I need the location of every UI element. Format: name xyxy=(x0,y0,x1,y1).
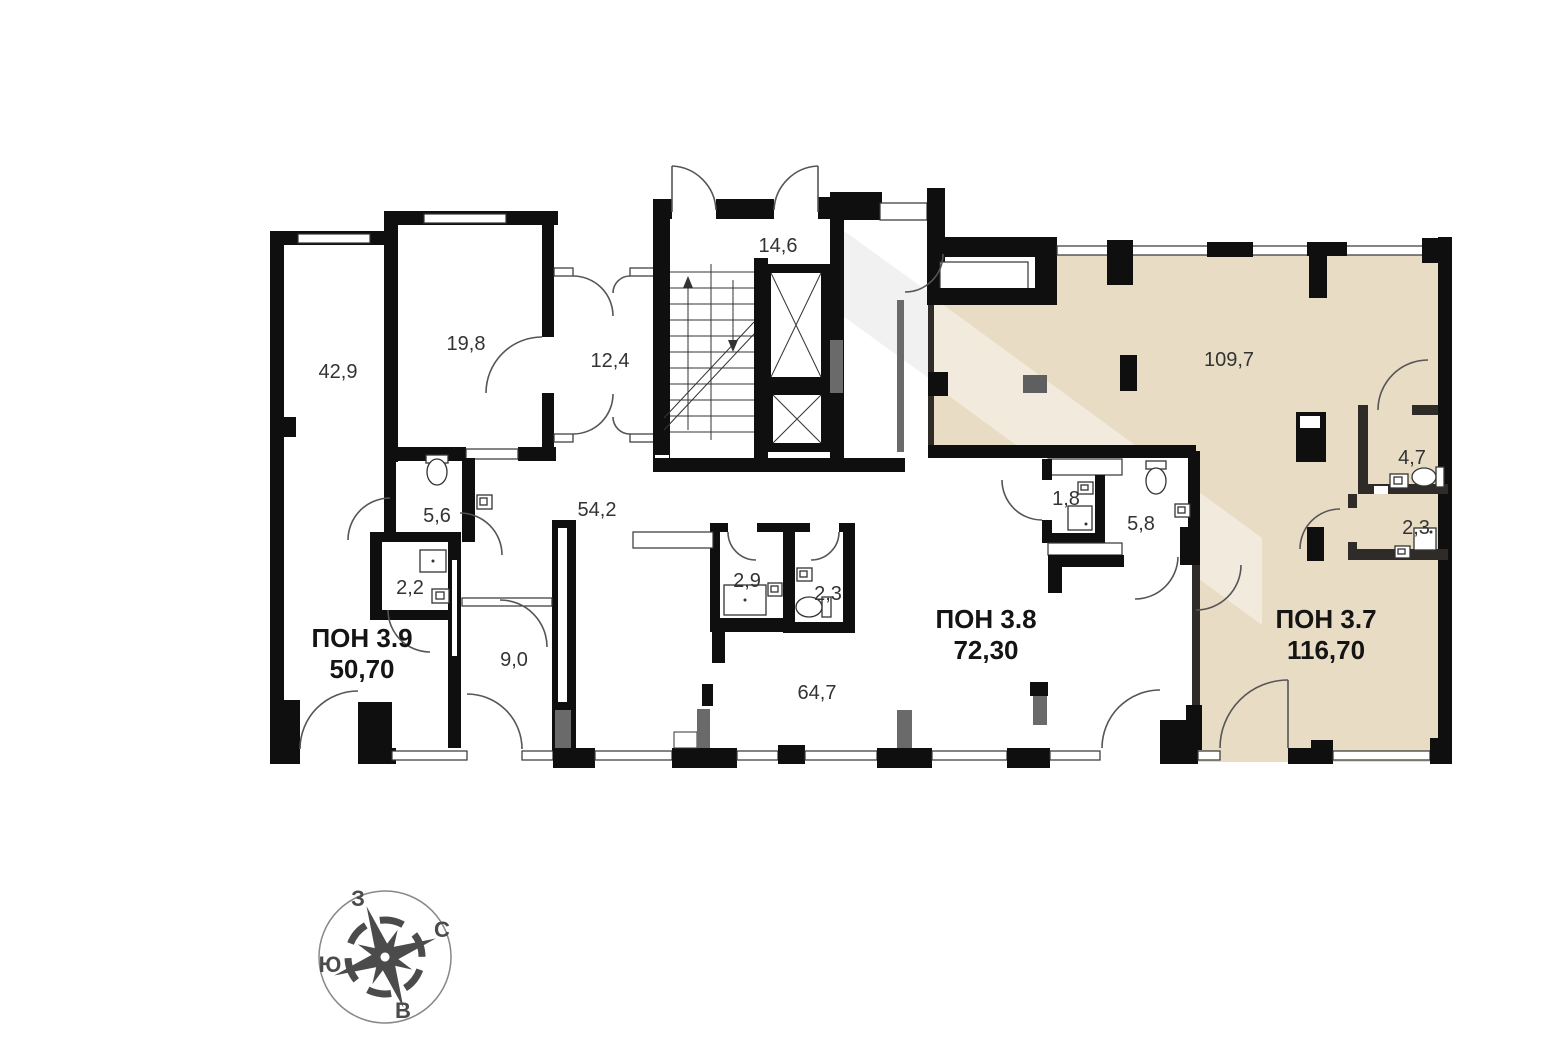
sink-icon xyxy=(420,550,446,572)
sink-icon xyxy=(768,583,782,596)
compass-west-label: З xyxy=(351,886,365,911)
room-area-label: 109,7 xyxy=(1204,349,1254,371)
compass-south-label: Ю xyxy=(319,952,342,977)
stairs-down-arrow xyxy=(728,340,738,352)
toilet-icon xyxy=(1412,467,1444,487)
floor-plan-page: 42,9 19,8 12,4 14,6 5,6 54,2 2,2 9,0 2,9… xyxy=(0,0,1550,1058)
unit-label-3-7: ПОН 3.7 116,70 xyxy=(1275,604,1376,665)
room-area-label: 2,3 xyxy=(814,583,842,605)
toilet-icon xyxy=(1146,461,1166,494)
unit-area: 116,70 xyxy=(1287,635,1365,665)
elevator-shaft-1 xyxy=(762,264,830,386)
room-area-label: 2,2 xyxy=(396,577,424,599)
room-area-label: 4,7 xyxy=(1398,447,1426,469)
room-area-label: 5,6 xyxy=(423,505,451,527)
room-area-label: 54,2 xyxy=(578,499,617,521)
floor-plan: 42,9 19,8 12,4 14,6 5,6 54,2 2,2 9,0 2,9… xyxy=(0,0,1550,1058)
sink-icon xyxy=(432,589,449,603)
elevator-shaft-2 xyxy=(764,386,830,452)
sink-icon xyxy=(1078,482,1093,494)
stairs xyxy=(664,264,754,440)
room-area-label: 14,6 xyxy=(759,235,798,257)
unit-name: ПОН 3.9 xyxy=(311,623,412,653)
room-area-label: 9,0 xyxy=(500,649,528,671)
sink-icon xyxy=(1390,474,1408,488)
room-area-label: 42,9 xyxy=(319,361,358,383)
unit-area: 72,30 xyxy=(953,635,1018,665)
room-area-label: 12,4 xyxy=(591,350,630,372)
compass-rose: З С Ю В xyxy=(316,886,454,1026)
unit-label-3-8: ПОН 3.8 72,30 xyxy=(935,604,1036,665)
room-area-label: 5,8 xyxy=(1127,513,1155,535)
sink-icon xyxy=(1395,546,1410,558)
unit-label-3-9: ПОН 3.9 50,70 xyxy=(311,623,412,684)
toilet-icon xyxy=(426,455,448,485)
sink-icon xyxy=(477,495,492,509)
compass-east-label: В xyxy=(395,998,411,1023)
room-area-label: 1,8 xyxy=(1052,488,1080,510)
unit-name: ПОН 3.7 xyxy=(1275,604,1376,634)
room-area-label: 2,9 xyxy=(733,570,761,592)
stairs-up-arrow xyxy=(683,276,693,288)
sink-icon xyxy=(1175,504,1190,517)
room-area-label: 64,7 xyxy=(798,682,837,704)
compass-north-label: С xyxy=(434,917,450,942)
room-area-label: 2,3 xyxy=(1402,517,1430,539)
sink-icon xyxy=(797,568,812,581)
unit-3-7-highlight xyxy=(836,225,1438,762)
unit-area: 50,70 xyxy=(329,654,394,684)
unit-name: ПОН 3.8 xyxy=(935,604,1036,634)
room-area-label: 19,8 xyxy=(447,333,486,355)
